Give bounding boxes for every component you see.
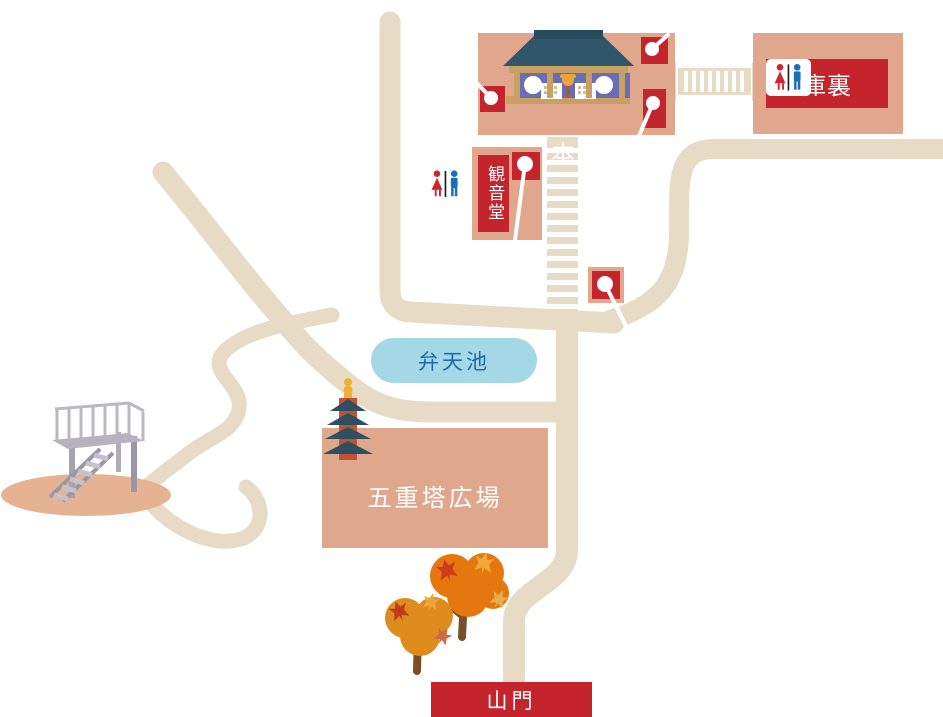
five-story-pagoda-icon	[323, 378, 373, 460]
photo-spot-pin-3[interactable]	[636, 89, 666, 143]
map-pin-icon	[517, 156, 533, 172]
map-decorations	[0, 0, 943, 717]
map-pin-icon	[484, 91, 498, 105]
playground-area	[1, 403, 171, 516]
photo-spot-pin-1[interactable]	[474, 80, 505, 112]
photo-spot-pin-4[interactable]	[512, 152, 540, 240]
map-pin-icon	[646, 96, 660, 110]
map-pin-icon	[645, 42, 659, 56]
temple-grounds-map: 本堂 庫裏 観音堂 弁天池 五重塔広場 山門	[0, 0, 943, 717]
maple-tree-icon	[385, 592, 454, 671]
photo-spot-pin-2[interactable]	[641, 35, 668, 64]
photo-spot-pin-5[interactable]	[588, 267, 628, 330]
map-pin-icon	[597, 276, 613, 292]
restroom-icon	[432, 170, 458, 197]
main-hall-building-icon	[503, 30, 634, 104]
